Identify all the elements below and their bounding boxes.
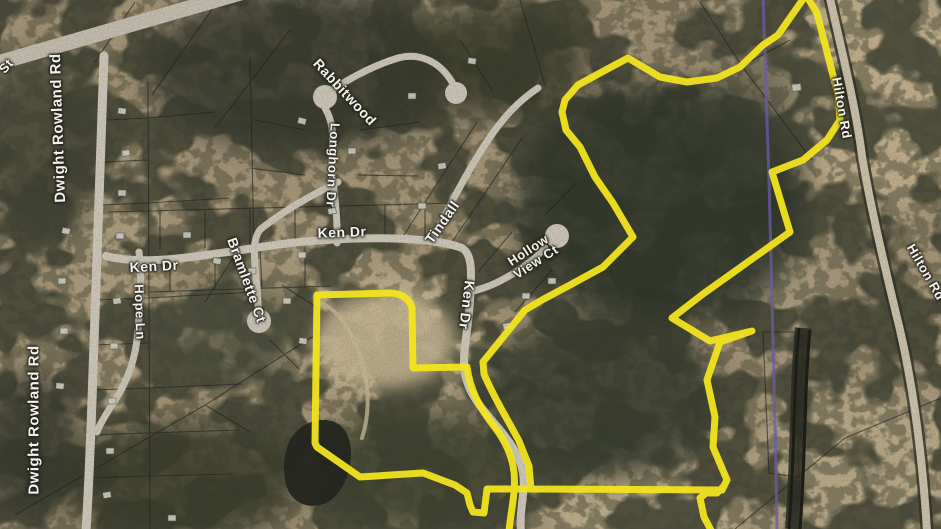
aerial-parcel-map: St Dwight Rowland Rd Dwight Rowland Rd K… (0, 0, 941, 529)
street-label-ken-dr-central: Ken Dr (317, 223, 366, 241)
street-label-ken-dr-west: Ken Dr (129, 257, 179, 276)
street-label-hope-ln: Hope Ln (132, 284, 149, 340)
street-label-dwight-rowland-rd-south: Dwight Rowland Rd (26, 345, 43, 494)
